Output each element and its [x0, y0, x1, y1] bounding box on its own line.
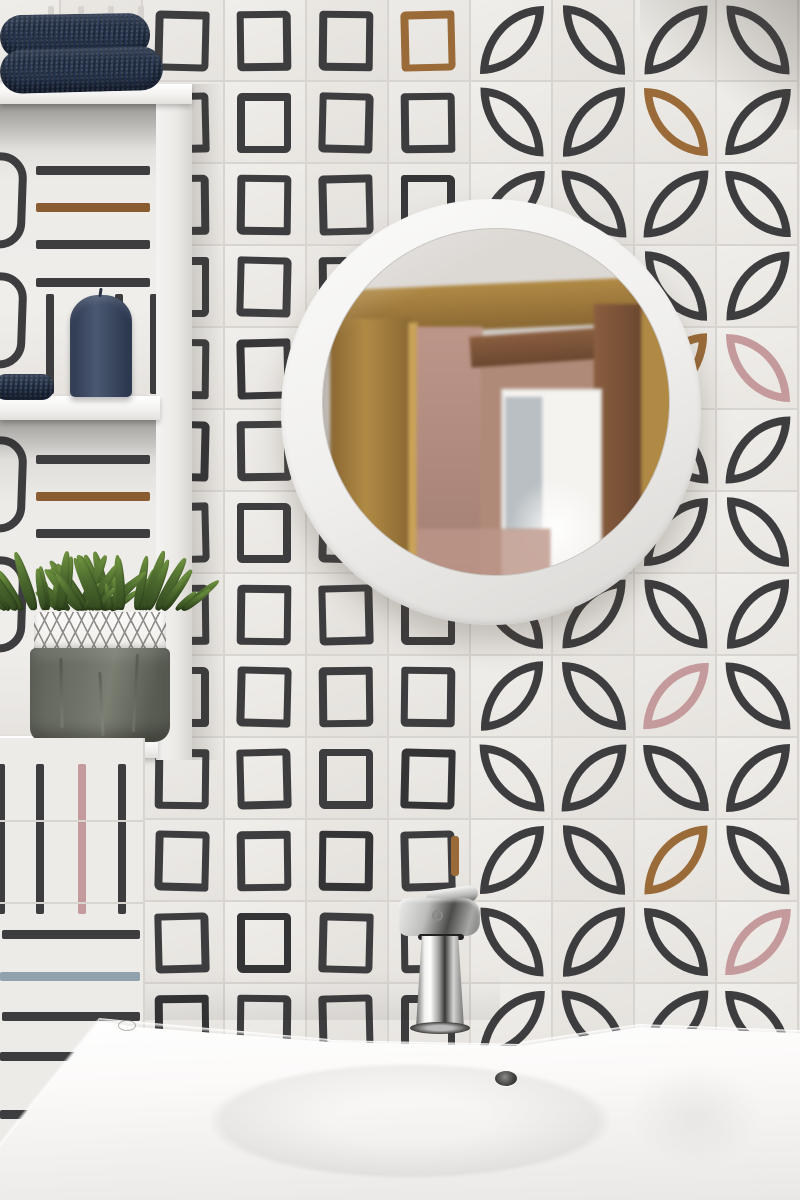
wall-tile [635, 82, 717, 164]
stripe-bar-vertical [78, 764, 86, 914]
wall-tile [635, 656, 717, 738]
square-motif [400, 748, 455, 809]
planter-crease [59, 658, 63, 728]
square-motif [237, 913, 291, 973]
reflected-door-jamb-left [330, 319, 410, 576]
planter-band [34, 612, 166, 650]
planter-crease [132, 654, 139, 732]
wall-tile [225, 164, 307, 246]
square-motif [319, 831, 374, 892]
wall-tile [307, 0, 389, 82]
reflected-floor-blur [417, 529, 551, 576]
petal-motif [726, 334, 790, 402]
niche-shadow [0, 420, 156, 460]
petal-motif [725, 169, 791, 239]
wall-tile [635, 902, 717, 984]
petal-motif [726, 662, 791, 731]
petal-motif [480, 908, 545, 977]
mirror-reflection [322, 228, 670, 576]
faucet-base [410, 1022, 470, 1034]
stripe-bar-horizontal [0, 972, 140, 981]
wall-tile [307, 82, 389, 164]
square-motif [237, 11, 292, 72]
square-motif [237, 831, 292, 892]
wall-tile [553, 738, 635, 820]
wall-tile [553, 0, 635, 82]
wall-tile [471, 738, 553, 820]
wall-tile [307, 820, 389, 902]
wall-tile [143, 902, 225, 984]
wall-tile [389, 0, 471, 82]
bathroom-photo [0, 0, 800, 1200]
wall-tile [225, 246, 307, 328]
towel-stack-lower [0, 46, 164, 94]
wall-tile [635, 820, 717, 902]
petal-motif [643, 743, 709, 813]
wall-tile [471, 82, 553, 164]
square-motif [318, 92, 373, 153]
petal-motif [643, 661, 709, 731]
petal-motif [644, 580, 709, 649]
wall-tile [717, 0, 799, 82]
petal-motif [480, 6, 544, 74]
reflected-oak-right [641, 290, 670, 576]
wall-tile [225, 738, 307, 820]
petal-motif [725, 579, 791, 649]
sink-brand-mark [118, 1020, 136, 1031]
petal-motif [644, 908, 708, 976]
petal-motif [644, 6, 709, 75]
planter-crease [98, 672, 104, 736]
square-motif [236, 256, 291, 317]
petal-motif [562, 662, 626, 730]
petal-motif [561, 5, 627, 75]
square-motif [319, 749, 373, 809]
wall-tile [635, 0, 717, 82]
wall-tile [225, 656, 307, 738]
petal-motif [725, 87, 791, 157]
stripe-bar-horizontal [2, 930, 140, 939]
petal-motif [561, 825, 627, 895]
petal-motif [561, 907, 627, 977]
wall-tile [717, 902, 799, 984]
square-motif [237, 585, 292, 646]
stripe-bar-horizontal [36, 278, 150, 287]
faucet-logo-dot [432, 910, 443, 921]
stripe-bar-vertical [0, 764, 5, 914]
square-motif [318, 584, 373, 645]
side-tile-arc [0, 271, 28, 369]
gable-wall-shadow [192, 84, 222, 760]
petal-motif [726, 6, 791, 75]
towel-small [0, 374, 54, 400]
mirror-glass [322, 228, 670, 576]
petal-motif [644, 88, 708, 156]
wall-tile [307, 738, 389, 820]
pillar-candle [70, 295, 132, 397]
grout-line [0, 902, 145, 904]
square-motif [154, 830, 209, 891]
wall-tile [717, 656, 799, 738]
wall-tile [307, 902, 389, 984]
petal-motif [725, 497, 791, 567]
wall-tile [225, 82, 307, 164]
wall-tile [717, 738, 799, 820]
planter-body [30, 648, 170, 742]
chrome-faucet [396, 888, 484, 1036]
wall-tile [389, 656, 471, 738]
wall-tile [225, 574, 307, 656]
petal-motif [480, 744, 545, 813]
faucet-body [416, 936, 464, 1028]
wall-tile [143, 820, 225, 902]
wall-tile [471, 656, 553, 738]
petal-motif [644, 826, 709, 895]
wall-tile [717, 820, 799, 902]
petal-motif [725, 907, 791, 977]
wall-tile [717, 82, 799, 164]
petal-motif [479, 661, 545, 731]
stripe-bar-vertical [118, 764, 126, 914]
petal-motif [726, 744, 790, 812]
wall-tile [553, 656, 635, 738]
square-motif [318, 912, 373, 973]
wall-tile [225, 492, 307, 574]
grout-line [0, 820, 145, 822]
wall-tile [553, 82, 635, 164]
stripe-bar-vertical [36, 764, 44, 914]
wall-tile [389, 738, 471, 820]
wall-tile [307, 656, 389, 738]
square-motif [237, 503, 291, 563]
petal-motif [726, 252, 791, 321]
wall-tile [717, 492, 799, 574]
square-motif [319, 11, 374, 72]
wall-tile [635, 574, 717, 656]
wall-tile [471, 0, 553, 82]
petal-motif [562, 744, 627, 813]
wall-tile [717, 574, 799, 656]
wall-tile [717, 164, 799, 246]
wall-tile [225, 820, 307, 902]
square-motif [400, 830, 455, 891]
stripe-bar-horizontal [36, 240, 150, 249]
stripe-bar-horizontal [36, 203, 150, 212]
petal-motif [726, 416, 791, 485]
niche-shadow [0, 104, 156, 150]
square-motif [319, 667, 374, 728]
wall-tile [553, 902, 635, 984]
overflow-hole [495, 1071, 517, 1086]
square-motif [401, 93, 456, 154]
petal-motif [726, 826, 791, 895]
wall-tile [389, 82, 471, 164]
petal-motif [561, 87, 627, 157]
petal-motif [480, 88, 545, 157]
wall-tile [225, 0, 307, 82]
square-motif [318, 174, 373, 235]
wall-tile [717, 246, 799, 328]
stripe-bar-horizontal [36, 166, 150, 175]
wall-tile [225, 902, 307, 984]
wall-tile [635, 738, 717, 820]
square-motif [154, 912, 209, 973]
square-motif [236, 666, 291, 727]
succulent-plant [0, 498, 192, 628]
square-motif [237, 93, 291, 153]
wall-tile [717, 410, 799, 492]
square-motif [400, 10, 455, 71]
side-tile-arc [0, 151, 28, 249]
square-motif [401, 667, 456, 728]
square-accent-bar [451, 836, 459, 876]
wall-tile [553, 820, 635, 902]
petal-motif [480, 826, 544, 894]
square-motif [236, 748, 291, 809]
wall-tile [717, 328, 799, 410]
square-motif [154, 10, 209, 71]
square-motif [237, 175, 292, 236]
